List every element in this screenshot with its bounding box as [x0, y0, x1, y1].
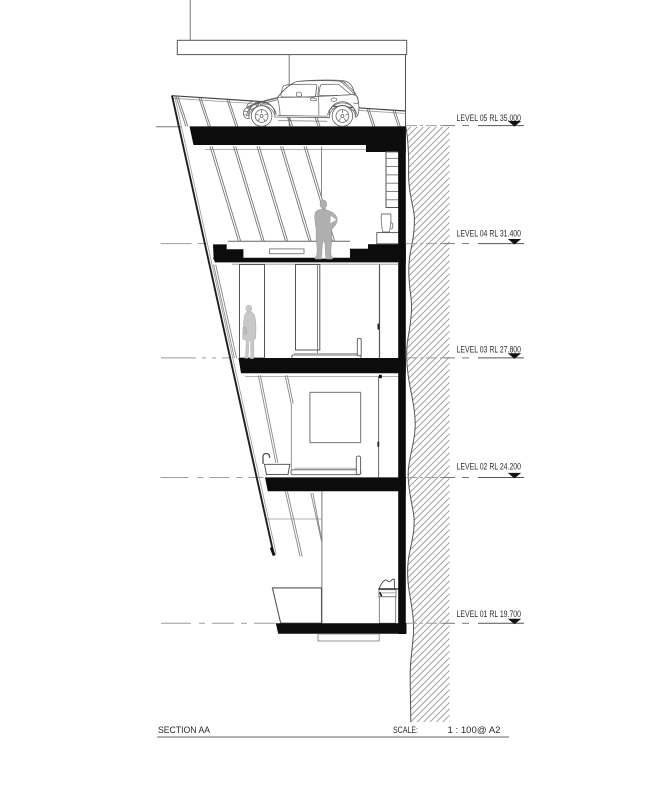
svg-text:SECTION AA: SECTION AA	[158, 725, 210, 735]
svg-text:1 : 100@ A2: 1 : 100@ A2	[448, 725, 501, 735]
svg-text:LEVEL 04 RL 31.400: LEVEL 04 RL 31.400	[457, 229, 522, 239]
svg-text:LEVEL 03 RL 27.800: LEVEL 03 RL 27.800	[457, 344, 522, 354]
svg-text:LEVEL 01 RL 19.700: LEVEL 01 RL 19.700	[457, 609, 522, 619]
svg-text:LEVEL 02 RL 24.200: LEVEL 02 RL 24.200	[457, 461, 522, 471]
svg-text:SCALE:: SCALE:	[393, 725, 418, 735]
